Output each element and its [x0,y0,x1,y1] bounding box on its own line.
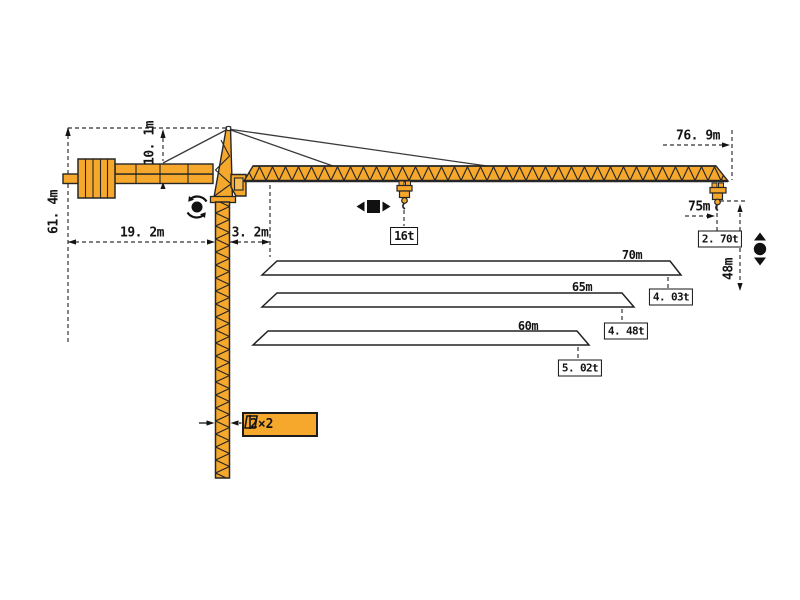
mast-section-box: 2×2 [242,412,318,437]
tower-head [214,126,233,200]
jib-length-60m-label: 60m [518,319,538,333]
load-60m-box: 5. 02t [558,360,602,377]
tie-rods [163,129,487,166]
counterweight-block [78,159,115,198]
apex-pin [226,126,230,130]
operator-cab [231,175,246,197]
counter-jib-radius-label: 19. 2m [120,226,164,241]
tip-load-box: 2. 70t [698,231,742,248]
trolley-hook [397,181,412,209]
hook-icon [403,203,405,209]
load-65m-box: 4. 48t [604,323,648,340]
jib-length-65m-label: 65m [572,280,592,294]
tip-radius-label: 75m [688,200,710,215]
jib-strip-70m [262,261,681,275]
max-load-box: 16t [390,227,418,245]
hook-height-label: 48m [722,258,737,280]
crane-diagram: 61. 4m 10. 1m 19. 2m 3. 2m 76. 9m 75m 48… [0,0,800,600]
load-70m-box: 4. 03t [649,289,693,306]
tip-trolley-hook [710,183,726,211]
jib-length-70m-label: 70m [622,248,642,262]
counter-jib [63,159,213,198]
jib-strip-60m [253,331,589,345]
total-height-label: 61. 4m [47,190,62,234]
counter-jib-deck [115,164,213,174]
hoisting-icon [754,233,766,266]
max-radius-label: 76. 9m [676,129,720,144]
slewing-icon [188,196,207,218]
jib-strip-65m [262,293,634,307]
tower-mast [216,202,230,478]
tower-head-height-label: 10. 1m [143,121,158,165]
trolley-travel-icon [357,200,391,213]
mast-section-icon [244,414,258,430]
cab-window [235,178,244,190]
main-jib [244,166,728,181]
mast-offset-label: 3. 2m [232,226,269,241]
